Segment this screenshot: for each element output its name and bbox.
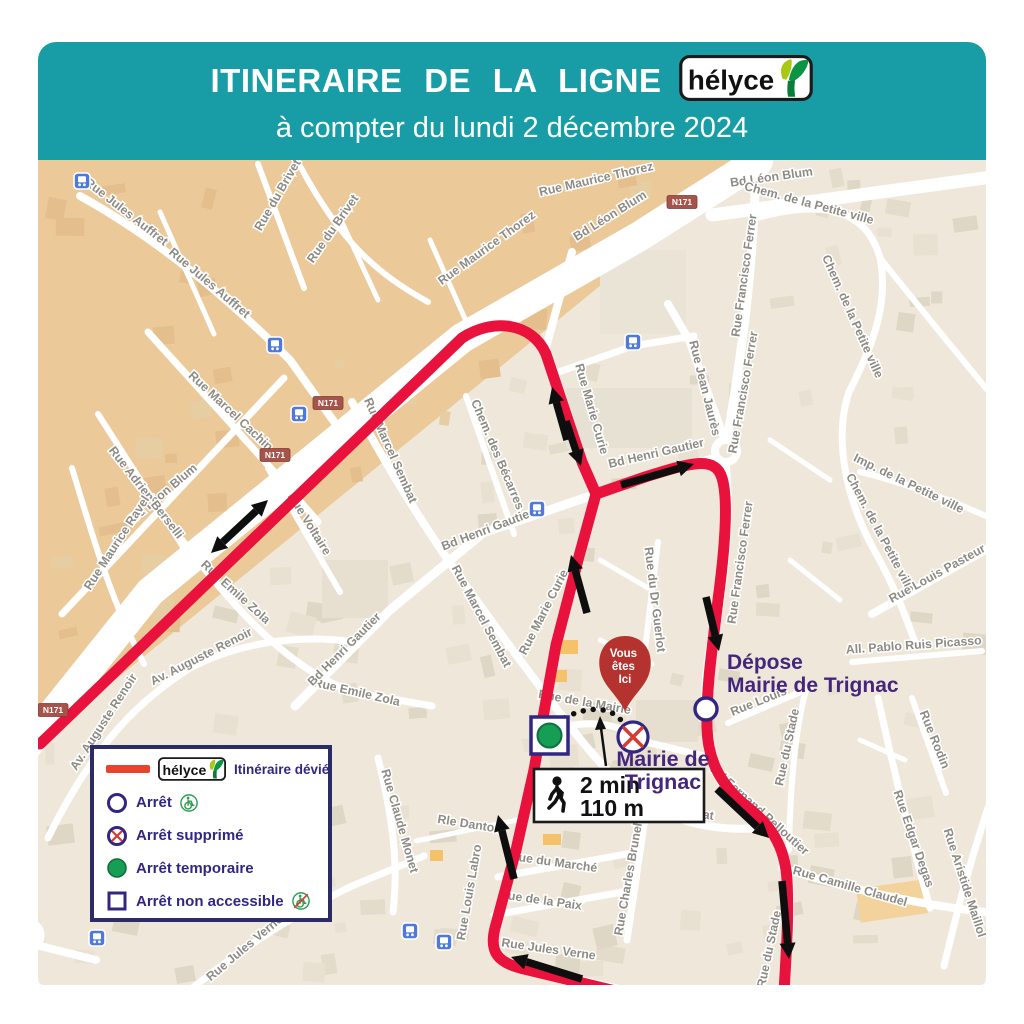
building (896, 312, 916, 333)
building (480, 481, 495, 503)
legend: hélyce Itinéraire dévié Arrêt (90, 745, 332, 922)
legend-item-temporary-stop: Arrêt temporaire (106, 857, 318, 879)
pin-line3: Ici (619, 674, 632, 686)
street-label: Rue Jules Verne (204, 912, 286, 984)
building (389, 562, 414, 586)
bus-stop-icon (267, 337, 283, 353)
legend-item-non-accessible-stop: Arrêt non accessible (106, 890, 318, 912)
building (510, 916, 540, 937)
building (726, 941, 744, 956)
helyce-logo-small: hélyce (158, 757, 226, 781)
building (877, 228, 891, 237)
route-arrow (494, 815, 514, 879)
street-label: Rue Louis Labro (454, 843, 485, 941)
bus-stop-icon (436, 934, 452, 950)
temporary-stop-icon (106, 857, 128, 879)
building (558, 518, 575, 535)
depose-label-line2: Mairie de Trignac (727, 674, 899, 697)
building (439, 410, 451, 425)
building (910, 611, 933, 623)
legend-label: Itinéraire dévié (234, 762, 329, 777)
building (480, 655, 496, 679)
bus-stop-icon (74, 173, 90, 189)
legend-item-removed-stop: Arrêt supprimé (106, 825, 318, 847)
building (482, 698, 510, 721)
street-label: Rue Francisco Ferrer (728, 213, 759, 338)
bus-stop-icon (291, 406, 307, 422)
poster: ITINERAIRE DE LA LIGNE hélyce à compter … (0, 0, 1024, 1024)
road-badge: N171 (313, 397, 343, 410)
building (669, 673, 684, 687)
legend-item-deviated-route: hélyce Itinéraire dévié (106, 757, 318, 781)
mairie-label-line2: Trignac (625, 770, 702, 794)
building (885, 198, 911, 217)
building (45, 743, 54, 765)
building (165, 454, 177, 464)
depose-label-line1: Dépose (727, 651, 803, 674)
building (360, 899, 386, 915)
building (901, 387, 914, 400)
building (508, 377, 527, 394)
building (561, 831, 581, 850)
building (523, 432, 548, 451)
building (479, 359, 501, 380)
svg-text:N171: N171 (672, 197, 693, 207)
building (913, 234, 938, 256)
building (335, 922, 347, 933)
wheelchair-crossed-icon (292, 892, 310, 910)
building (770, 295, 795, 309)
building (452, 605, 466, 625)
street-label: Bd Henri Gautier (305, 610, 384, 689)
building (798, 389, 813, 406)
road-badge: N171 (667, 196, 697, 209)
building (853, 935, 878, 944)
building (952, 215, 978, 233)
legend-label: Arrêt supprimé (136, 827, 244, 844)
building (835, 533, 862, 552)
building (756, 584, 770, 598)
helyce-logo: hélyce (679, 54, 813, 107)
stop-temporary-non-accessible (531, 717, 568, 754)
building (829, 168, 845, 189)
building (135, 438, 164, 460)
non-accessible-stop-icon (106, 890, 128, 912)
bus-stop-icon (529, 501, 545, 517)
legend-label: Arrêt temporaire (136, 860, 254, 877)
roundabout (38, 923, 40, 947)
bus-stop-icon (625, 334, 641, 350)
building (302, 962, 325, 983)
street-label: Bd Henri Gautier (439, 505, 535, 553)
header-banner: ITINERAIRE DE LA LIGNE hélyce à compter … (38, 42, 986, 160)
building (51, 556, 74, 569)
pin-line1: Vous (610, 648, 637, 660)
building (716, 848, 727, 865)
bus-stop-icon (402, 923, 418, 939)
building (680, 910, 701, 931)
building (821, 541, 833, 554)
building (174, 965, 196, 984)
building (931, 291, 942, 303)
building (803, 811, 832, 832)
building (891, 856, 913, 879)
svg-text:N171: N171 (318, 398, 339, 408)
building (577, 961, 603, 977)
wheelchair-icon (180, 794, 198, 812)
helyce-logo-text: hélyce (688, 65, 774, 96)
helyce-logo-small-text: hélyce (163, 762, 207, 778)
building (213, 367, 233, 385)
building (207, 493, 227, 513)
svg-text:N171: N171 (43, 705, 64, 715)
building (756, 602, 781, 617)
building (408, 707, 427, 719)
street-label: Rue Claude Monet (378, 767, 421, 874)
building (270, 567, 292, 585)
road-badge: N171 (38, 704, 68, 717)
pin-line2: êtes (612, 661, 635, 673)
legend-label: Arrêt (136, 794, 172, 811)
building (350, 467, 363, 483)
building (894, 426, 908, 444)
page-title: ITINERAIRE DE LA LIGNE (211, 62, 662, 100)
svg-text:N171: N171 (265, 450, 286, 460)
building (213, 713, 239, 735)
street-label: Rue Emile Zola (312, 675, 401, 709)
building (445, 643, 472, 664)
stop-icon (106, 792, 128, 814)
effective-date: à compter du lundi 2 décembre 2024 (38, 112, 986, 145)
building (814, 832, 839, 848)
walk-distance: 110 m (580, 795, 644, 821)
building (748, 753, 775, 772)
mairie-label-line1: Mairie de (616, 747, 709, 771)
road-badge: N171 (260, 449, 290, 462)
legend-label: Arrêt non accessible (136, 893, 284, 910)
legend-item-stop: Arrêt (106, 792, 318, 814)
removed-stop-icon (106, 825, 128, 847)
bus-stop-icon (89, 930, 105, 946)
stop-depose (695, 698, 717, 720)
route-swatch (106, 765, 150, 773)
map: Rue Jules AuffretRue Jules AuffretRue du… (38, 160, 986, 985)
